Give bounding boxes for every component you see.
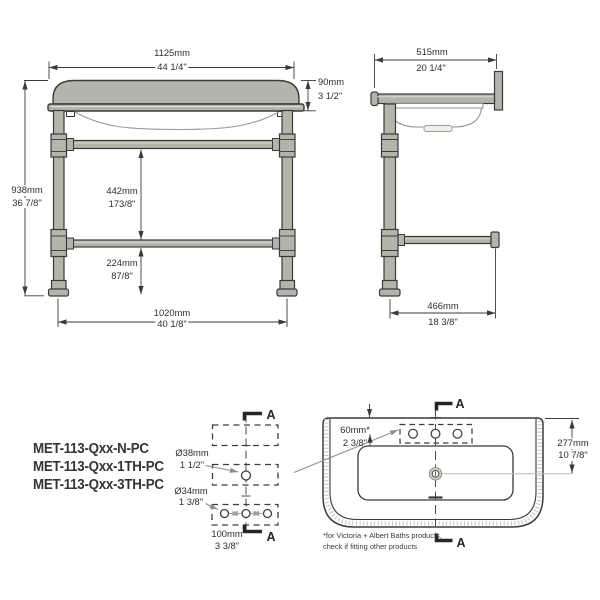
- lower-rail-sleeve-left: [67, 238, 74, 249]
- section-marker-top-label: A: [266, 408, 275, 422]
- product-code-1: MET-113-Qxx-N-PC: [33, 441, 149, 458]
- front-width-in-label: 44 1/4": [155, 62, 188, 73]
- front-rail-gap-mm-label: 442mm: [106, 186, 137, 197]
- front-lower-rail-mm-label: 224mm: [106, 258, 137, 269]
- front-leg-span-in-label: 40 1/8": [155, 319, 188, 330]
- footnote-line-1: *for Victoria + Albert Baths products,: [323, 532, 442, 541]
- large-hole-in-label: 1 1/2": [180, 460, 204, 471]
- plan-marker-bottom-label: A: [456, 536, 465, 550]
- front-width-mm-label: 1125mm: [154, 48, 190, 59]
- section-mark-top: [437, 404, 453, 411]
- plan-view: [294, 404, 579, 541]
- side-rail-wall-cap: [491, 232, 499, 248]
- large-tap-hole: [242, 471, 251, 480]
- footnote-line-2: check if fitting other products: [323, 543, 417, 552]
- tap-setback-in-label: 2 3/8": [343, 438, 367, 449]
- product-code-2: MET-113-Qxx-1TH-PC: [33, 459, 164, 476]
- front-lower-rail-in-label: 87/8": [111, 271, 133, 282]
- side-foot: [380, 281, 401, 297]
- lower-rail-sleeve-right: [273, 238, 280, 249]
- small-tap-hole: [264, 510, 272, 518]
- side-rear-rail: [398, 237, 491, 244]
- side-bowl-drain-bump: [424, 126, 452, 132]
- front-bowl-outline: [75, 112, 279, 130]
- plan-marker-top-label: A: [455, 397, 464, 411]
- technical-drawing-canvas: 1125mm 44 1/4" 90mm 3 1/2" 938mm 36 7/8"…: [0, 0, 600, 600]
- side-rail-sleeve: [398, 235, 405, 246]
- front-height-in-label: 36 7/8": [10, 198, 43, 209]
- side-depth-in-label: 20 1/4": [416, 63, 445, 74]
- side-depth-mm-label: 515mm: [416, 47, 447, 58]
- small-tap-hole: [221, 510, 229, 518]
- front-rail-gap-in-label: 173/8": [109, 199, 136, 210]
- side-bowl-lip: [386, 104, 483, 109]
- small-hole-dia-label: Ø34mm: [174, 486, 207, 497]
- front-thickness-in-label: 3 1/2": [318, 91, 342, 102]
- section-detail: [206, 414, 279, 532]
- large-hole-dia-label: Ø38mm: [175, 448, 208, 459]
- side-rail-depth-mm-label: 466mm: [427, 301, 458, 312]
- plan-tap-hole: [453, 429, 462, 438]
- small-tap-hole: [242, 510, 250, 518]
- feet: [49, 281, 298, 297]
- wall-bracket: [495, 72, 503, 111]
- line-art: [0, 0, 600, 600]
- front-upper-rail: [67, 141, 280, 149]
- front-countertop-lip: [48, 104, 304, 111]
- basin-clip-left: [67, 112, 75, 117]
- front-view: [48, 81, 304, 297]
- front-height-mm-label: 938mm: [9, 185, 44, 196]
- side-rail-depth-in-label: 18 3/8": [428, 317, 457, 328]
- upper-rail-sleeve-right: [273, 139, 280, 151]
- section-mark-top: [245, 414, 263, 421]
- side-bowl: [390, 108, 482, 127]
- hole-spacing-mm-label: 100mm: [211, 529, 242, 540]
- drain-setback-mm-label: 277mm: [555, 438, 590, 449]
- section-marker-bottom-label: A: [266, 530, 275, 544]
- leader-large-hole: [206, 466, 239, 473]
- side-view: [371, 72, 503, 297]
- side-countertop: [374, 94, 495, 104]
- side-countertop-lip: [371, 92, 378, 106]
- front-countertop-slab: [53, 81, 299, 105]
- small-hole-in-label: 1 3/8": [179, 497, 203, 508]
- front-lower-rail: [67, 240, 280, 247]
- collar-rings: [51, 140, 295, 251]
- front-thickness-mm-label: 90mm: [318, 77, 344, 88]
- drain-setback-in-label: 10 7/8": [556, 450, 589, 461]
- plan-tap-hole: [431, 429, 440, 438]
- leg-collars: [51, 134, 295, 257]
- product-code-3: MET-113-Qxx-3TH-PC: [33, 477, 164, 494]
- hole-spacing-in-label: 3 3/8": [215, 541, 239, 552]
- upper-rail-sleeve-left: [67, 139, 74, 151]
- plan-tap-hole: [409, 429, 418, 438]
- tap-setback-mm-label: 60mm*: [340, 425, 370, 436]
